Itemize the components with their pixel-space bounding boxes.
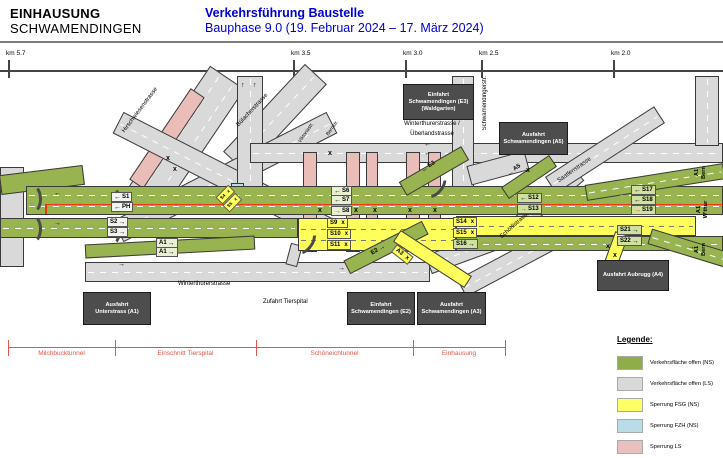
lane-arrow-icon: ←	[54, 190, 61, 197]
road-winterthurerstrasse-bottom	[85, 262, 430, 282]
closure-x-mark: x	[328, 150, 332, 157]
section-label: Einhausung	[442, 350, 476, 357]
signal-chip-label: S17	[642, 186, 653, 194]
signal-chip-S11: S11x	[327, 240, 351, 250]
route-arrow-icon: ←	[334, 188, 341, 195]
signal-chip-A1: A1→	[156, 247, 178, 257]
section-label: Schöneichtunnel	[310, 350, 358, 357]
gate-box-label: Einfahrt	[428, 92, 449, 99]
signal-chip-label: A1	[159, 239, 167, 247]
gate-box-label: Ausfahrt	[522, 132, 545, 139]
signal-chip-label: PH	[122, 203, 130, 211]
km-tick-label: km 3.0	[403, 50, 423, 57]
signal-chip-S12: ←S12	[517, 193, 542, 203]
signal-chip-S19: →S19	[631, 205, 656, 215]
gate-box: AusfahrtSchwamendingen (A5)	[499, 122, 568, 155]
signal-chip-label: S16	[456, 240, 467, 248]
route-arrow-icon: →	[118, 219, 125, 226]
km-tick-label: km 2.5	[479, 50, 499, 57]
gate-box-label: Schwamendingen (E3)	[409, 99, 469, 106]
edge-destination-label: A1Bern	[694, 166, 707, 179]
gate-box-label: Einfahrt	[370, 302, 391, 309]
route-arrow-icon: →	[520, 206, 527, 213]
signal-chip-S21: S21→	[617, 225, 642, 235]
page-title-line2: SCHWAMENDINGEN	[10, 21, 142, 36]
closure-x-mark: x	[373, 207, 377, 214]
signal-chip-S18: ←S18	[631, 195, 656, 205]
diagram-canvas: EINHAUSUNG SCHWAMENDINGEN Verkehrsführun…	[0, 0, 723, 458]
signal-chip-S22: S22→	[617, 236, 642, 246]
legend-item: Verkehrsfläche offen (LS)	[617, 377, 713, 391]
signal-chip-label: S21	[620, 226, 631, 234]
legend-label: Verkehrsfläche offen (LS)	[650, 381, 713, 387]
legend-swatch	[617, 377, 643, 391]
diagram-subtitle: Verkehrsführung Baustelle	[205, 6, 364, 20]
route-arrow-icon: ←	[520, 195, 527, 202]
km-tick-label: km 3.5	[291, 50, 311, 57]
signal-chip-label: S11	[330, 241, 340, 249]
lane-arrow-icon: ←	[424, 150, 431, 157]
closure-x-mark: x	[166, 155, 170, 162]
street-label-vertical: Schwamendingerstr.	[482, 76, 488, 130]
route-arrow-icon: →	[168, 240, 175, 247]
closure-x-mark: x	[471, 229, 474, 237]
street-label: Winterthurerstrasse	[178, 281, 230, 287]
signal-chip-S14: S14x	[453, 217, 477, 227]
signal-chip-label: S1	[122, 193, 129, 201]
gate-box-label: Ausfahrt	[106, 302, 129, 309]
legend-title: Legende:	[617, 335, 653, 344]
edge-destination-label: A1Bern	[694, 243, 707, 256]
km-tick-label: km 2.0	[611, 50, 631, 57]
route-arrow-icon: ←	[634, 197, 641, 204]
closure-x-mark: x	[471, 218, 474, 226]
section-scale-tick	[256, 340, 257, 356]
legend-swatch	[617, 419, 643, 433]
signal-chip-label: A3	[394, 247, 405, 258]
signal-chip-S3: S3→	[107, 227, 128, 237]
legend-swatch	[617, 398, 643, 412]
section-label: Einschnitt Tierspital	[158, 350, 214, 357]
closure-x-mark: x	[173, 166, 177, 173]
gate-box-label: Schwamendingen (A3)	[422, 309, 482, 316]
lane-arrow-icon: ↑	[253, 82, 257, 89]
route-arrow-icon: →	[632, 238, 639, 245]
closure-x-mark: x	[354, 207, 358, 214]
signal-chip-label: S12	[528, 194, 539, 202]
closure-x-mark: x	[318, 207, 322, 214]
street-label: Winterthurerstrasse /	[404, 121, 460, 127]
closure-x-mark: x	[433, 207, 437, 214]
signal-chip-label: S5	[225, 200, 235, 210]
gate-box-label: Ausfahrt	[440, 302, 463, 309]
route-arrow-icon: →	[168, 249, 175, 256]
legend-item: Sperrung LS	[617, 440, 681, 454]
edge-destination-text: W'thur	[703, 201, 710, 218]
signal-chip-label: S2	[110, 218, 117, 226]
route-arrow-icon: ←	[114, 204, 121, 211]
section-scale-tick	[115, 340, 116, 356]
signal-chip-S16: S16→	[453, 239, 478, 249]
gate-box-label: Ausfahrt Aubrugg (A4)	[603, 272, 663, 279]
street-label: Überlandstrasse	[410, 131, 454, 137]
section-scale-tick	[505, 340, 506, 356]
lane-arrow-icon: ←	[424, 141, 431, 148]
gate-box: AusfahrtUnterstrass (A1)	[83, 292, 151, 325]
legend-swatch	[617, 440, 643, 454]
gate-box: EinfahrtSchwamendingen (E3)(Waldgarten)	[403, 84, 474, 120]
portal-arc	[22, 214, 42, 244]
lane-arrow-icon: →	[54, 220, 61, 227]
signal-chip-S10: S10x	[327, 229, 351, 239]
signal-chip-S17: ←S17	[631, 185, 656, 195]
edge-destination-text: Bern	[700, 166, 707, 179]
street-label: Zufahrt Tierspital	[263, 299, 308, 305]
lane-arrow-icon: ↑	[241, 82, 245, 89]
route-arrow-icon: →	[118, 229, 125, 236]
signal-chip-label: S14	[456, 218, 467, 226]
route-arrow-icon: ←	[114, 194, 121, 201]
gate-box: AusfahrtSchwamendingen (A3)	[417, 292, 486, 325]
legend-label: Sperrung LS	[650, 444, 681, 450]
closure-x-mark: x	[345, 230, 348, 238]
gate-box-label: Unterstrass (A1)	[95, 309, 139, 316]
route-arrow-icon: ←	[334, 197, 341, 204]
red-route-hook	[45, 204, 47, 214]
closure-x-mark: x	[344, 241, 347, 249]
diagram-phase-dates: Bauphase 9.0 (19. Februar 2024 – 17. Mär…	[205, 21, 484, 35]
closure-x-mark: x	[408, 207, 412, 214]
closure-x-mark: x	[526, 167, 530, 174]
signal-chip-PH: ←PH	[111, 202, 133, 212]
signal-chip-label: S6	[342, 187, 349, 195]
signal-chip-S13: →S13	[517, 204, 542, 214]
legend-item: Sperrung FSG (NS)	[617, 398, 699, 412]
signal-chip-S7: ←S7	[331, 195, 352, 205]
route-arrow-icon: →	[632, 227, 639, 234]
route-arrow-icon: →	[468, 241, 475, 248]
red-route-line	[45, 204, 723, 205]
gate-box-label: Schwamendingen (A5)	[504, 139, 564, 146]
signal-chip-S1: ←S1	[111, 192, 132, 202]
section-scale-tick	[413, 340, 414, 356]
closure-x-mark: x	[225, 188, 232, 195]
gate-box: Ausfahrt Aubrugg (A4)	[597, 260, 669, 291]
portal-arc	[22, 184, 42, 214]
signal-chip-label: A1	[159, 248, 167, 256]
signal-chip-label: S15	[456, 229, 467, 237]
km-tick-label: km 5.7	[6, 50, 26, 57]
signal-chip-S9: S9x	[327, 218, 348, 228]
closure-x-mark: x	[232, 196, 239, 203]
signal-chip-label: S7	[342, 196, 349, 204]
road-irchel-vertical	[237, 76, 263, 192]
closure-x-mark: x	[606, 243, 610, 250]
signal-chip-S15: S15x	[453, 228, 477, 238]
closure-x-mark: x	[403, 254, 411, 262]
signal-chip-S2: S2→	[107, 217, 128, 227]
closure-x-mark: x	[613, 252, 617, 259]
signal-chip-label: S10	[330, 230, 341, 238]
signal-chip-label: S9	[330, 219, 337, 227]
legend-swatch	[617, 356, 643, 370]
edge-destination-label: A1W'thur	[696, 201, 709, 218]
route-arrow-icon: →	[334, 208, 341, 215]
signal-chip-label: S22	[620, 237, 631, 245]
legend-item: Verkehrsfläche offen (NS)	[617, 356, 714, 370]
road-top-right-vertical	[695, 76, 719, 146]
page-title-line1: EINHAUSUNG	[10, 6, 100, 21]
legend-label: Verkehrsfläche offen (NS)	[650, 360, 714, 366]
km-tick	[405, 60, 407, 78]
closure-x-mark: x	[341, 219, 344, 227]
lane-arrow-icon: →	[118, 261, 125, 268]
route-arrow-icon: →	[634, 207, 641, 214]
signal-chip-label: S19	[642, 206, 653, 214]
signal-chip-label: S13	[528, 205, 539, 213]
lane-arrow-icon: →	[338, 265, 345, 272]
gate-box-label: (Waldgarten)	[422, 106, 456, 113]
km-tick	[8, 60, 10, 78]
signal-chip-label: S8	[342, 207, 349, 215]
section-scale-tick	[8, 340, 9, 356]
edge-destination-text: Bern	[700, 243, 707, 256]
route-arrow-icon: ←	[634, 187, 641, 194]
gate-box: EinfahrtSchwamendingen (E2)	[347, 292, 415, 325]
legend-label: Sperrung FZH (NS)	[650, 423, 699, 429]
km-tick	[613, 60, 615, 78]
header-divider	[0, 41, 723, 43]
signal-chip-label: S18	[642, 196, 653, 204]
gate-box-label: Schwamendingen (E2)	[351, 309, 411, 316]
signal-chip-S8: →S8	[331, 206, 352, 216]
legend-item: Sperrung FZH (NS)	[617, 419, 699, 433]
signal-chip-label: S3	[110, 228, 117, 236]
legend-label: Sperrung FSG (NS)	[650, 402, 699, 408]
section-label: Milchbucktunnel	[38, 350, 85, 357]
